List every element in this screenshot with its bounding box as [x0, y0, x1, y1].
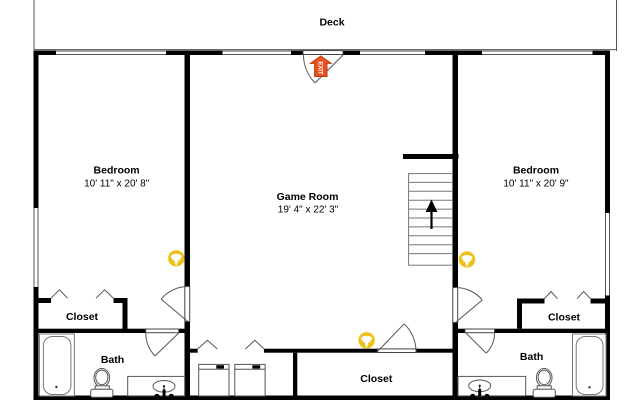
svg-text:19' 4" x 22' 3": 19' 4" x 22' 3" [278, 204, 339, 215]
svg-text:10' 11" x 20' 8": 10' 11" x 20' 8" [84, 178, 150, 189]
svg-text:Bath: Bath [101, 354, 124, 366]
svg-text:Game Room: Game Room [277, 191, 339, 203]
svg-text:Closet: Closet [548, 311, 581, 323]
svg-text:Bedroom: Bedroom [513, 165, 559, 177]
svg-text:Bath: Bath [520, 351, 543, 363]
svg-text:10' 11" x 20' 9": 10' 11" x 20' 9" [503, 178, 569, 189]
svg-text:Closet: Closet [360, 373, 393, 385]
svg-text:EXIT: EXIT [317, 61, 323, 75]
svg-text:Deck: Deck [319, 17, 344, 29]
svg-text:Closet: Closet [66, 311, 99, 323]
svg-text:Bedroom: Bedroom [94, 165, 140, 177]
